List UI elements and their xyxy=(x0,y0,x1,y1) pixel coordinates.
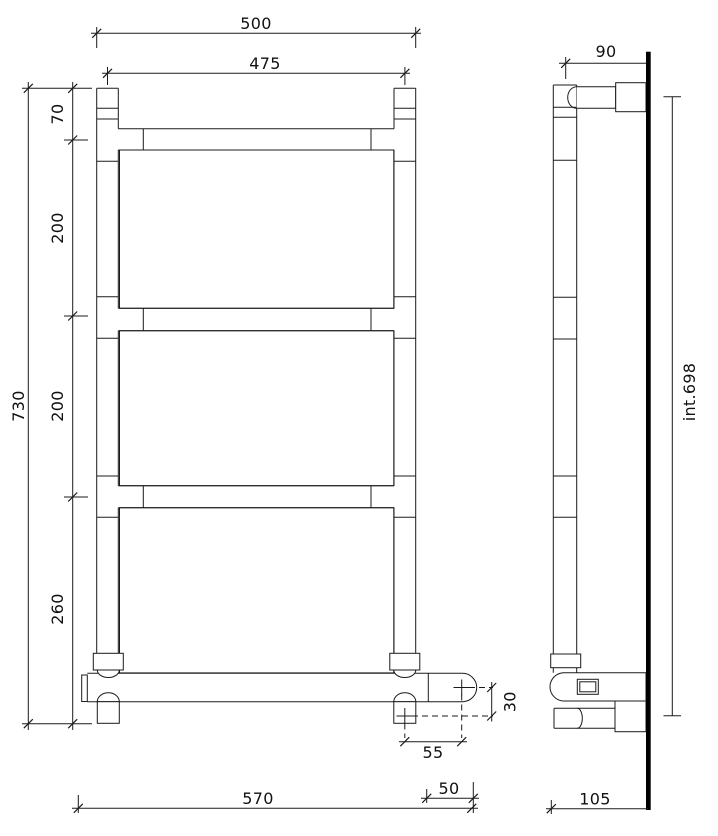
wall-line xyxy=(646,52,651,810)
bottom-connection xyxy=(550,673,646,732)
dim-label-200-upper: 200 xyxy=(48,212,67,243)
dim-label-570: 570 xyxy=(242,789,273,808)
wall-flange xyxy=(616,83,646,112)
front-view xyxy=(82,88,493,738)
dim-label-70: 70 xyxy=(48,104,67,125)
left-end-plug xyxy=(82,675,88,702)
dim-interaxis-698: int.698 xyxy=(664,97,700,716)
dim-label-55: 55 xyxy=(423,743,444,762)
dim-depth-105: 105 xyxy=(546,790,648,815)
dim-label-260: 260 xyxy=(48,593,67,624)
rail-fittings xyxy=(93,653,420,723)
dim-width-overall: 500 xyxy=(91,14,421,48)
dim-label-500: 500 xyxy=(240,14,271,33)
lower-wall-union xyxy=(615,701,646,732)
dim-width-centers: 475 xyxy=(102,54,410,85)
dim-label-50: 50 xyxy=(439,779,460,798)
right-rail xyxy=(394,88,416,653)
technical-drawing-sheet: 500 475 70 200 200 260 730 xyxy=(0,0,718,836)
dim-outlet-55: 55 xyxy=(399,737,467,762)
left-outlet-valve xyxy=(97,702,119,724)
dim-label-30: 30 xyxy=(501,691,520,712)
dim-label-730: 730 xyxy=(9,390,28,421)
side-nut xyxy=(551,654,581,668)
cross-tubes xyxy=(118,129,394,508)
dim-label-int698: int.698 xyxy=(680,363,699,422)
dim-label-475: 475 xyxy=(249,54,280,73)
dim-label-200-lower: 200 xyxy=(48,390,67,421)
side-tube xyxy=(553,85,576,673)
dim-label-105: 105 xyxy=(579,790,610,809)
radiator-dimension-drawing: 500 475 70 200 200 260 730 xyxy=(0,0,718,836)
bottom-collector-tube xyxy=(82,673,477,701)
dim-left-chain: 70 200 200 260 730 xyxy=(9,82,92,730)
side-view xyxy=(550,52,651,810)
left-rail xyxy=(97,88,119,653)
dim-wall-90: 90 xyxy=(559,42,646,79)
top-wall-bracket xyxy=(568,83,646,112)
dim-outlet-30: 30 xyxy=(487,682,519,722)
dim-bottom-570: 570 xyxy=(72,789,478,813)
dim-label-90: 90 xyxy=(596,42,617,61)
heating-panels xyxy=(120,150,394,673)
